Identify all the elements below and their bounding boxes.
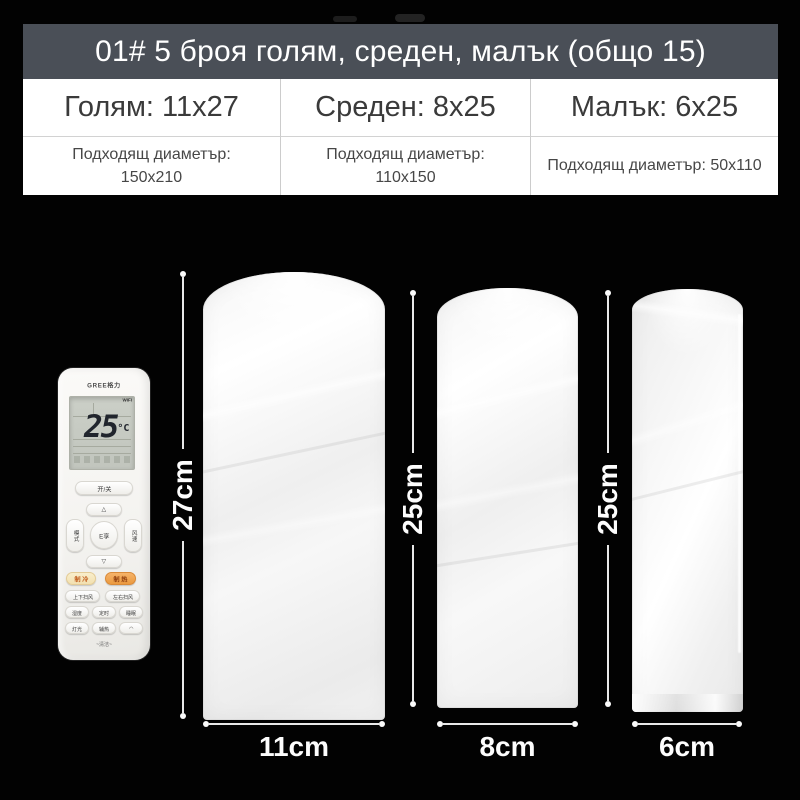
fit-cell-small: Подходящ диаметър: 50x110 <box>531 137 778 195</box>
dimension-line <box>607 545 609 702</box>
bag-highlight <box>451 288 564 355</box>
fan-speed-button: 风速 <box>124 519 142 552</box>
dimension-height-large: 27cm <box>168 271 198 719</box>
dimension-endpoint <box>605 701 611 707</box>
bag-sheen <box>437 362 578 430</box>
wifi-icon: ◠ <box>129 625 133 631</box>
aux-heat-button: 辅热 <box>92 622 116 634</box>
bag-bottom-fold <box>632 694 743 712</box>
fit-cell-medium: Подходящ диаметър: 110x150 <box>281 137 531 195</box>
dimension-line <box>182 277 184 449</box>
bag-sheen <box>203 493 385 557</box>
remote-control: GREE格力 25°C WiFi 开/关 △ 模式 E享 风速 ▽ 制 冷 制 … <box>58 368 150 660</box>
dimension-height-small: 25cm <box>593 290 623 707</box>
bag-sheen <box>203 356 385 435</box>
cool-button: 制 冷 <box>66 572 96 585</box>
plastic-cover-medium <box>437 288 578 708</box>
humidity-button: 湿度 <box>65 606 89 618</box>
plastic-cover-small <box>632 289 743 712</box>
lcd-grid-line <box>73 446 132 447</box>
up-arrow-button: △ <box>86 503 122 516</box>
title-text: 01# 5 броя голям, среден, малък (общо 15… <box>95 35 706 69</box>
size-cell-small: Малък: 6x25 <box>531 79 778 137</box>
dimension-line <box>203 721 385 727</box>
fit-label: Подходящ диаметър: <box>326 143 485 166</box>
fit-label: Подходящ диаметър: 50x110 <box>547 154 761 177</box>
size-table: Голям: 11x27 Среден: 8x25 Малък: 6x25 По… <box>23 79 778 195</box>
product-image: 01# 5 броя голям, среден, малък (общо 15… <box>0 0 800 800</box>
bag-sheen <box>632 389 743 457</box>
dimension-line <box>443 723 572 725</box>
temperature-readout: 25°C <box>84 409 129 445</box>
width-label-medium: 8cm <box>479 731 535 763</box>
photo-smudge <box>333 16 357 22</box>
width-label-large: 11cm <box>259 731 329 763</box>
temperature-unit: °C <box>117 423 129 434</box>
dimension-endpoint <box>736 721 742 727</box>
dimension-height-medium: 25cm <box>398 290 428 707</box>
size-cell-large: Голям: 11x27 <box>23 79 281 137</box>
heat-button: 制 热 <box>105 572 136 585</box>
photo-smudge <box>395 14 425 22</box>
down-arrow-button: ▽ <box>86 555 122 568</box>
dimension-endpoint <box>410 701 416 707</box>
plastic-cover-large <box>203 272 385 720</box>
brand-logo: GREE格力 <box>75 380 132 389</box>
dimension-line <box>209 723 379 725</box>
lcd-grid-line <box>73 453 132 454</box>
dimension-line <box>412 296 414 453</box>
dimension-label-wrap: 27cm <box>147 449 219 541</box>
dimension-endpoint <box>572 721 578 727</box>
bag-crease <box>437 537 578 571</box>
width-label-small: 6cm <box>659 731 715 763</box>
wifi-button: ◠ <box>119 622 143 634</box>
dimension-endpoint <box>379 721 385 727</box>
size-cell-medium: Среден: 8x25 <box>281 79 531 137</box>
sleep-button: 睡眠 <box>119 606 143 618</box>
triangle-up-icon: △ <box>102 506 107 513</box>
triangle-down-icon: ▽ <box>102 558 107 565</box>
timer-button: 定时 <box>92 606 116 618</box>
clean-label: ~清洁~ <box>81 640 127 648</box>
dimension-endpoint <box>180 713 186 719</box>
power-button: 开/关 <box>75 481 133 495</box>
lcd-segment-row <box>74 456 130 463</box>
dimension-width-large: 11cm <box>203 721 385 763</box>
fit-value: 110x150 <box>375 166 435 189</box>
bag-crease <box>632 465 743 506</box>
bag-sheen <box>437 464 578 521</box>
dimension-line <box>638 723 736 725</box>
height-label-large: 27cm <box>167 459 199 531</box>
wifi-indicator: WiFi <box>123 398 132 403</box>
fit-value: 150x210 <box>121 166 182 189</box>
mode-button: 模式 <box>66 519 84 552</box>
dimension-line <box>632 721 742 727</box>
dimension-line <box>412 545 414 702</box>
dimension-line <box>437 721 578 727</box>
height-label-medium: 25cm <box>397 463 429 535</box>
dimension-line <box>182 541 184 713</box>
lcd-display: 25°C WiFi <box>69 396 135 470</box>
light-button: 灯光 <box>65 622 89 634</box>
swing-horizontal-button: 左右扫风 <box>105 590 140 602</box>
dimension-width-small: 6cm <box>632 721 742 763</box>
swing-vertical-button: 上下扫风 <box>65 590 100 602</box>
fit-label: Подходящ диаметър: <box>72 143 231 166</box>
bag-crease <box>203 425 385 481</box>
bag-highlight <box>221 272 367 344</box>
dimension-width-medium: 8cm <box>437 721 578 763</box>
dimension-label-wrap: 25cm <box>572 453 644 545</box>
e-share-button: E享 <box>90 521 118 549</box>
temperature-value: 25 <box>84 409 117 445</box>
dimension-line <box>607 296 609 453</box>
bag-edge-highlight <box>738 314 741 652</box>
dimension-label-wrap: 25cm <box>377 453 449 545</box>
height-label-small: 25cm <box>592 463 624 535</box>
fit-cell-large: Подходящ диаметър: 150x210 <box>23 137 281 195</box>
title-banner: 01# 5 броя голям, среден, малък (общо 15… <box>23 24 778 79</box>
